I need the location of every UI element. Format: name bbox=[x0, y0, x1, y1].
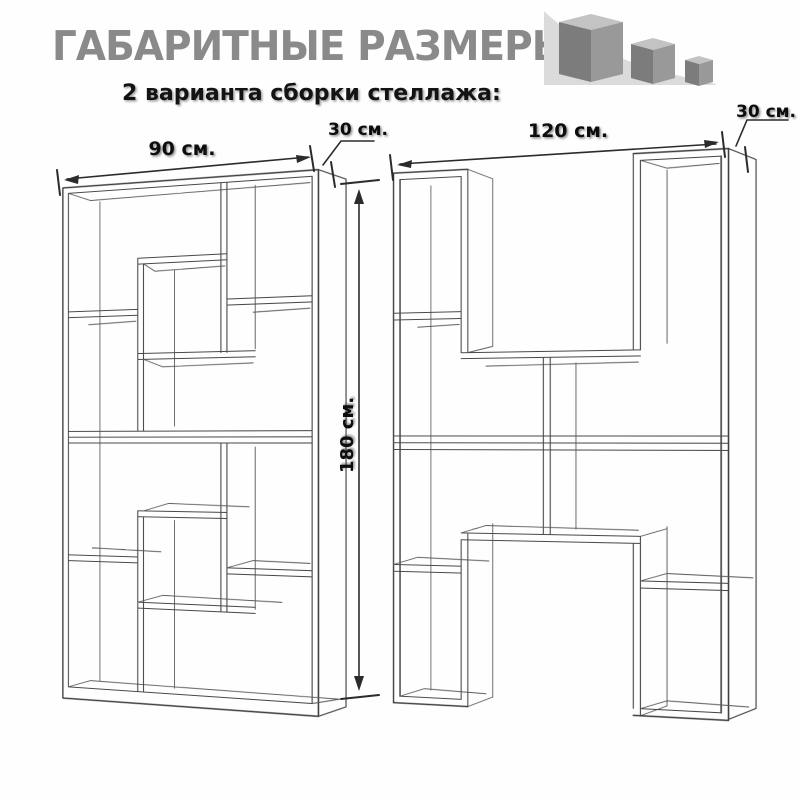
label-height-180: 180 см. bbox=[337, 395, 361, 475]
label-width-90: 90 см. bbox=[137, 138, 227, 160]
dimension-annotations bbox=[0, 0, 800, 800]
label-depth-30-right: 30 см. bbox=[736, 102, 796, 122]
label-depth-30-left: 30 см. bbox=[328, 120, 388, 140]
dim-depth-30-right bbox=[736, 120, 788, 172]
dim-depth-30-left bbox=[323, 141, 374, 187]
label-width-120: 120 см. bbox=[518, 120, 618, 142]
